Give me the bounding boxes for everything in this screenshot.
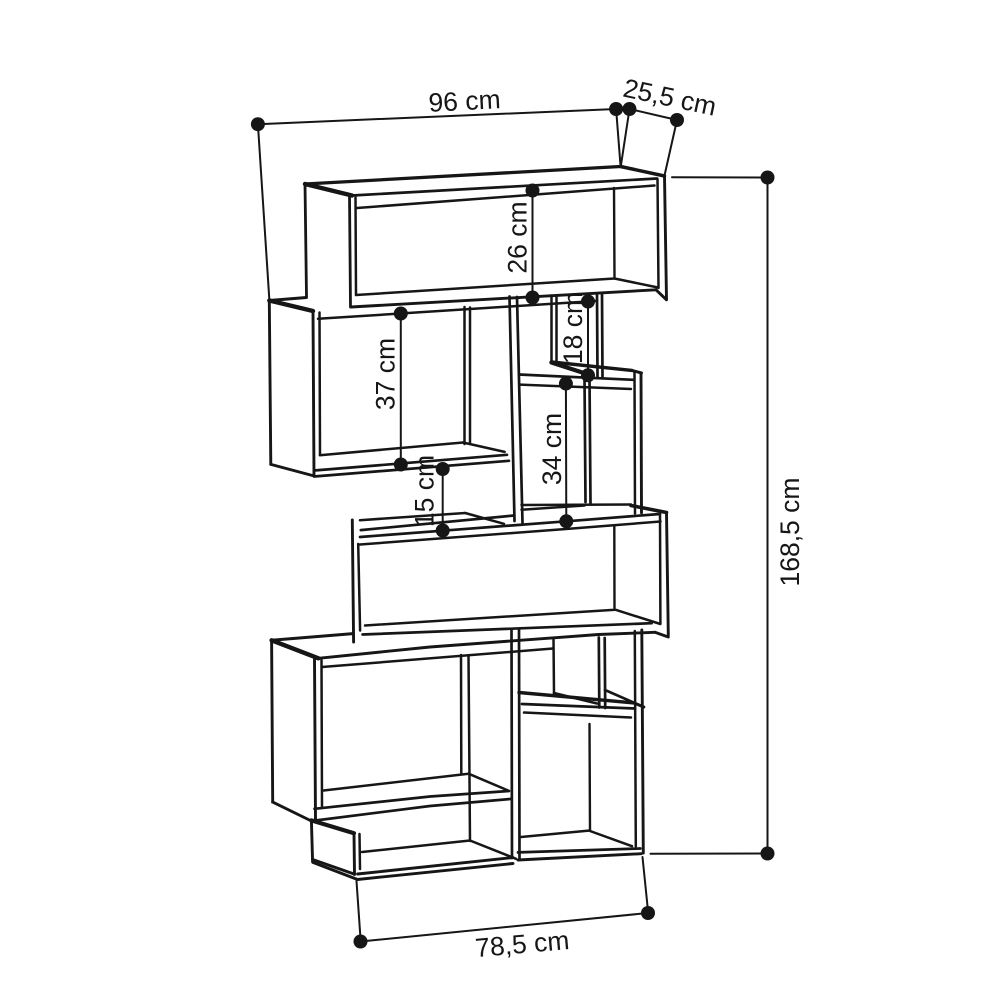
svg-text:25,5 cm: 25,5 cm bbox=[621, 73, 719, 122]
svg-text:168,5 cm: 168,5 cm bbox=[775, 477, 805, 586]
svg-text:96 cm: 96 cm bbox=[428, 84, 502, 118]
svg-text:37 cm: 37 cm bbox=[371, 338, 401, 410]
svg-text:15 cm: 15 cm bbox=[410, 455, 440, 527]
svg-text:26 cm: 26 cm bbox=[503, 201, 533, 273]
svg-text:18 cm: 18 cm bbox=[558, 292, 588, 364]
svg-text:78,5 cm: 78,5 cm bbox=[474, 925, 571, 963]
svg-text:34 cm: 34 cm bbox=[537, 413, 567, 485]
